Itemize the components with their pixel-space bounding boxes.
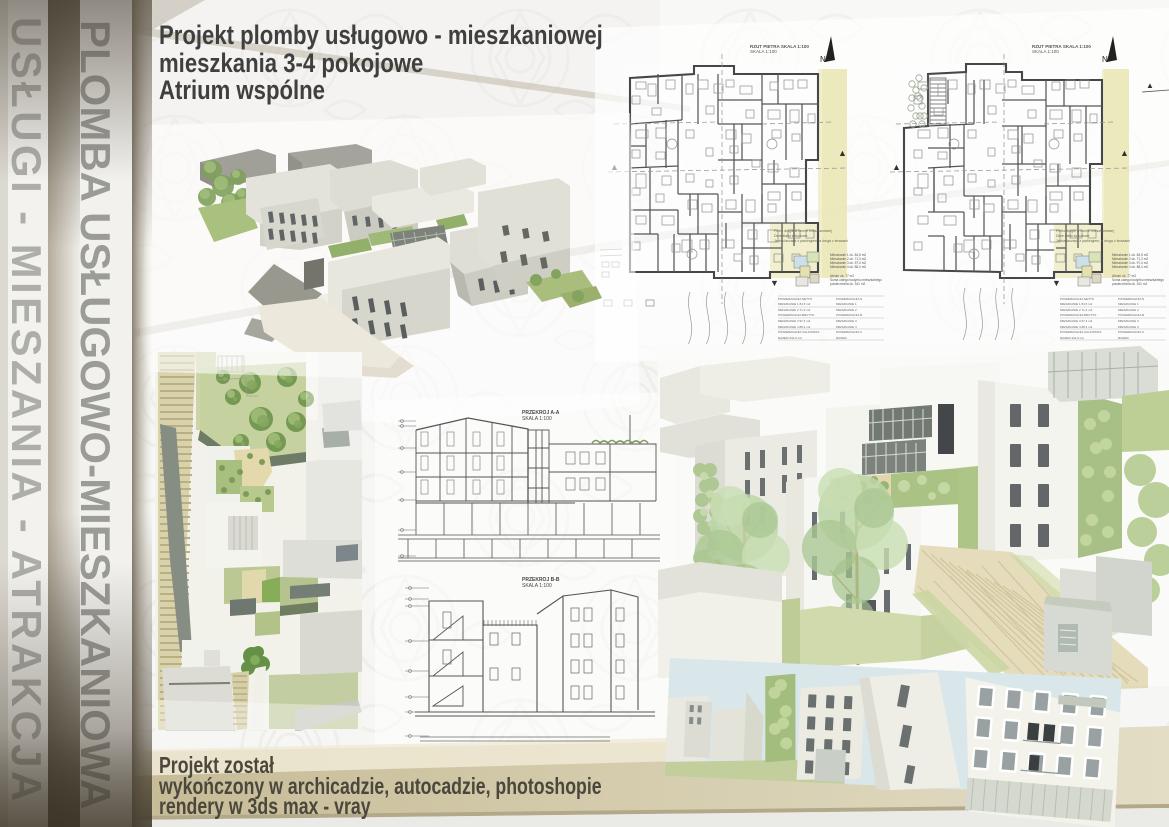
- svg-text:POWIERZCHNIA NETTO: POWIERZCHNIA NETTO: [778, 297, 813, 301]
- svg-text:MIESZKANIE 3: MIESZKANIE 3: [836, 319, 857, 323]
- svg-text:Jedna laczaca z parkingiem, a: Jedna laczaca z parkingiem, a druga z te…: [774, 239, 848, 243]
- svg-text:SKALA 1:100: SKALA 1:100: [522, 583, 552, 589]
- svg-text:POWIERZCHNIA BRUTTO: POWIERZCHNIA BRUTTO: [1060, 313, 1097, 317]
- svg-text:Mieszkanie 4 ok. 88,4 m2: Mieszkanie 4 ok. 88,4 m2: [1112, 265, 1148, 269]
- svg-text:POWIERZCHNIA BRUTTO: POWIERZCHNIA BRUTTO: [778, 313, 815, 317]
- svg-text:RAZEM: RAZEM: [836, 336, 847, 340]
- svg-text:▼: ▼: [770, 278, 779, 288]
- svg-text:POWIERZCHNIA N: POWIERZCHNIA N: [1118, 297, 1144, 301]
- svg-text:Pietro drugie w formie mieszka: Pietro drugie w formie mieszkaniowej: [774, 229, 832, 233]
- svg-text:MIESZKANIE 1: MIESZKANIE 1: [836, 302, 857, 306]
- svg-text:MIESZKANIE 2: MIESZKANIE 2: [836, 308, 857, 312]
- svg-text:MIESZKANIE 3: MIESZKANIE 3: [1118, 319, 1139, 323]
- svg-text:mieszkania 3-4 pokojowe: mieszkania 3-4 pokojowe: [159, 49, 423, 79]
- svg-text:MIESZKANIE 1 84,5 m2: MIESZKANIE 1 84,5 m2: [778, 302, 811, 306]
- svg-text:RAZEM: RAZEM: [1118, 336, 1129, 340]
- svg-text:MIESZKANIE 2: MIESZKANIE 2: [1118, 308, 1139, 312]
- svg-text:powierzchnia ok. 341 m2: powierzchnia ok. 341 m2: [830, 282, 865, 286]
- svg-text:Dwie klatki schodowe: Dwie klatki schodowe: [774, 234, 808, 238]
- svg-text:MIESZKANIE 2 71,3 m2: MIESZKANIE 2 71,3 m2: [778, 308, 811, 312]
- svg-text:Jedna laczaca z parkingiem, a: Jedna laczaca z parkingiem, a druga z te…: [1056, 239, 1130, 243]
- svg-text:Mieszkanie 4 ok. 88,4 m2: Mieszkanie 4 ok. 88,4 m2: [830, 265, 866, 269]
- svg-text:N: N: [1102, 55, 1108, 64]
- svg-text:POWIERZCHNIA C: POWIERZCHNIA C: [1118, 330, 1145, 334]
- svg-text:RAZEM 341,6 m2: RAZEM 341,6 m2: [1060, 336, 1084, 340]
- svg-text:POWIERZCHNIA B: POWIERZCHNIA B: [1118, 313, 1144, 317]
- svg-text:SKALA 1:100: SKALA 1:100: [522, 416, 552, 422]
- svg-text:rendery w 3ds max - vray: rendery w 3ds max - vray: [159, 794, 371, 820]
- svg-text:POWIERZCHNIA NETTO: POWIERZCHNIA NETTO: [1060, 297, 1095, 301]
- svg-text:▲: ▲: [1146, 81, 1154, 90]
- svg-text:RAZEM 341,6 m2: RAZEM 341,6 m2: [778, 336, 802, 340]
- svg-text:POWIERZCHNIA B: POWIERZCHNIA B: [836, 313, 862, 317]
- svg-text:MIESZKANIE 4: MIESZKANIE 4: [1118, 325, 1139, 329]
- svg-text:MIESZKANIE 4: MIESZKANIE 4: [836, 325, 857, 329]
- svg-text:Atrium wspólne: Atrium wspólne: [159, 76, 325, 106]
- svg-text:Projekt plomby usługowo - mies: Projekt plomby usługowo - mieszkaniowej: [159, 21, 603, 51]
- svg-text:POWIERZCHNIA C: POWIERZCHNIA C: [836, 330, 863, 334]
- svg-text:▼: ▼: [1052, 278, 1061, 288]
- svg-text:MIESZKANIE 4 88,4 m2: MIESZKANIE 4 88,4 m2: [1060, 325, 1093, 329]
- svg-text:POWIERZCHNIA CALKOWITA: POWIERZCHNIA CALKOWITA: [1060, 330, 1101, 334]
- svg-text:MIESZKANIE 3 97,4 m2: MIESZKANIE 3 97,4 m2: [1060, 319, 1093, 323]
- svg-text:MIESZKANIE 1: MIESZKANIE 1: [1118, 302, 1139, 306]
- svg-text:N: N: [820, 55, 826, 64]
- svg-text:MIESZKANIE 3 97,4 m2: MIESZKANIE 3 97,4 m2: [778, 319, 811, 323]
- svg-text:SKALA 1:100: SKALA 1:100: [750, 49, 777, 54]
- svg-text:POWIERZCHNIA N: POWIERZCHNIA N: [836, 297, 862, 301]
- svg-text:POWIERZCHNIA CALKOWITA: POWIERZCHNIA CALKOWITA: [778, 330, 819, 334]
- svg-text:Pietro drugie w formie mieszka: Pietro drugie w formie mieszkaniowej: [1056, 229, 1114, 233]
- svg-text:▲: ▲: [1120, 148, 1129, 158]
- svg-text:SKALA 1:100: SKALA 1:100: [1032, 49, 1059, 54]
- svg-text:▲: ▲: [838, 148, 847, 158]
- svg-text:MIESZKANIE 2 71,3 m2: MIESZKANIE 2 71,3 m2: [1060, 308, 1093, 312]
- svg-text:powierzchnia ok. 341 m2: powierzchnia ok. 341 m2: [1112, 282, 1147, 286]
- svg-text:▲: ▲: [892, 162, 901, 172]
- svg-text:MIESZKANIE 4 88,4 m2: MIESZKANIE 4 88,4 m2: [778, 325, 811, 329]
- svg-text:MIESZKANIE 1 84,5 m2: MIESZKANIE 1 84,5 m2: [1060, 302, 1093, 306]
- svg-text:Dwie klatki schodowe: Dwie klatki schodowe: [1056, 234, 1090, 238]
